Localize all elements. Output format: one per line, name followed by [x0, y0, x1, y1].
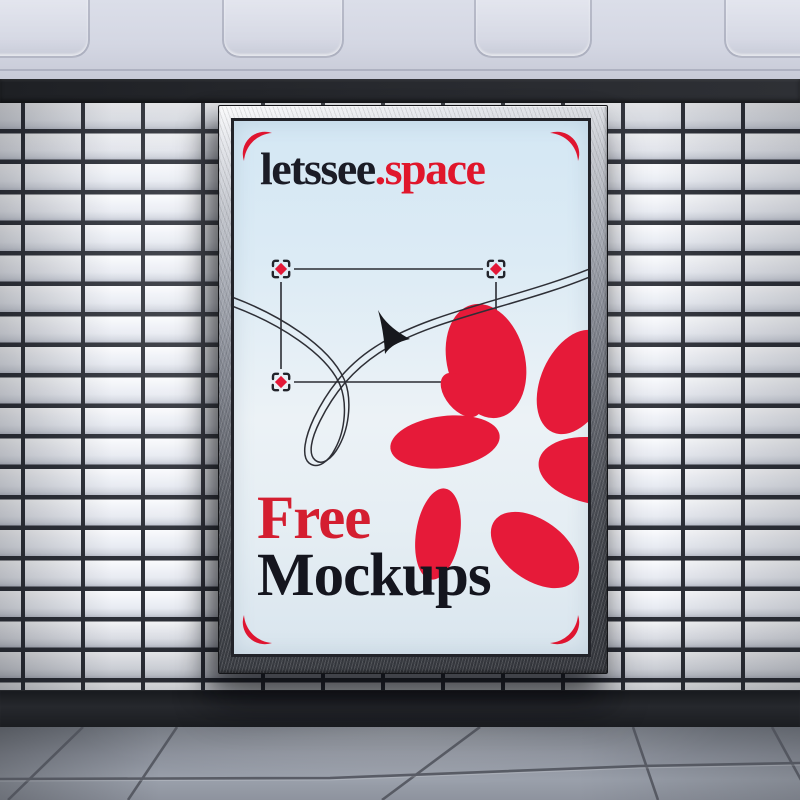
ceiling-panels [0, 0, 800, 79]
selection-handle-icon [273, 374, 289, 390]
floor-tile-joints [0, 727, 800, 800]
ceiling-trim-band [0, 79, 800, 103]
ceiling-panel [0, 0, 90, 58]
poster: letssee.space [231, 118, 591, 657]
headline: Free Mockups [257, 490, 491, 604]
headline-line2: Mockups [257, 547, 491, 604]
poster-frame: letssee.space [218, 105, 608, 674]
corner-bracket-icon [550, 132, 579, 161]
ceiling-panel [222, 0, 344, 58]
corner-bracket-icon [243, 132, 272, 161]
ceiling-panel [724, 0, 800, 58]
corner-bracket-icon [550, 615, 579, 644]
subway-poster-mockup-scene: letssee.space [0, 0, 800, 800]
headline-line1: Free [257, 490, 491, 547]
baseboard [0, 690, 800, 727]
cursor-arrow-icon [378, 310, 410, 354]
selection-handle-icon [273, 261, 289, 277]
floor [0, 727, 800, 800]
ceiling-groove-line [0, 69, 800, 71]
selection-handle-icon [488, 261, 504, 277]
corner-bracket-icon [243, 615, 272, 644]
ceiling-panel [474, 0, 592, 58]
